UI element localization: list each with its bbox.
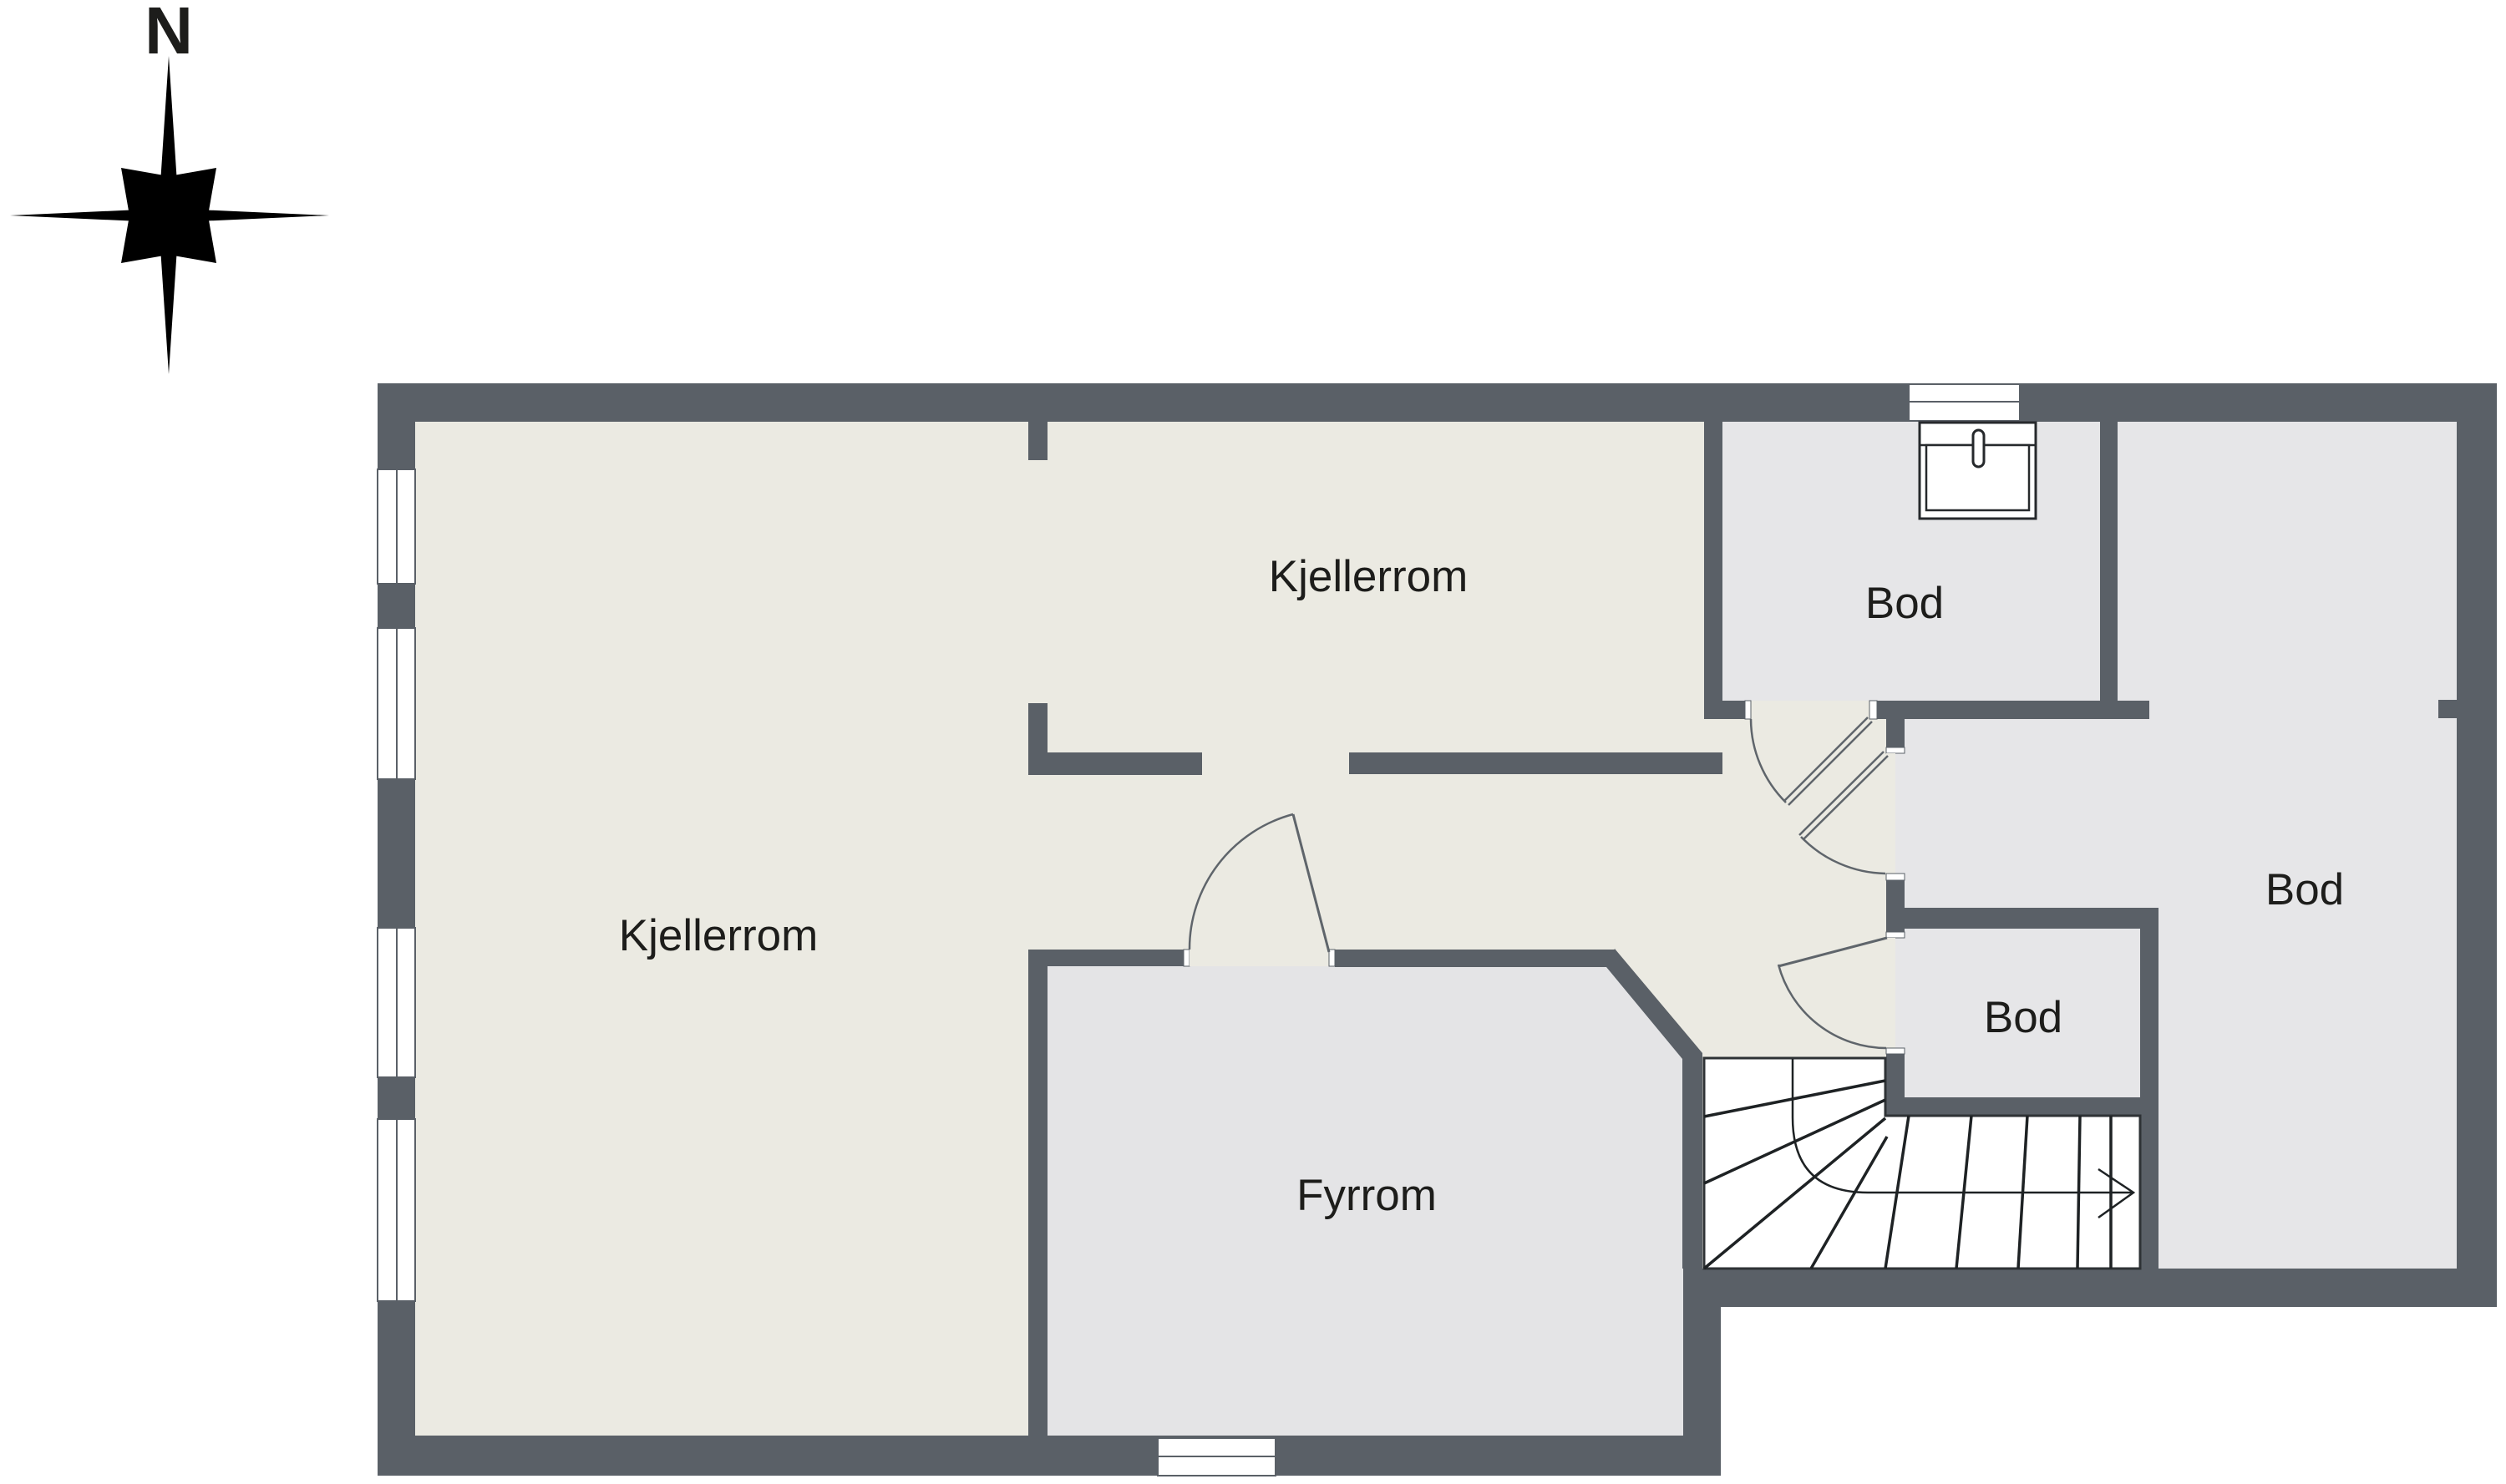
svg-text:Bod: Bod [2265,865,2344,914]
svg-text:Bod: Bod [1984,993,2062,1042]
svg-text:Kjellerrom: Kjellerrom [1269,552,1469,601]
svg-text:N: N [145,0,193,68]
svg-text:Kjellerrom: Kjellerrom [619,911,819,960]
svg-text:Bod: Bod [1865,579,1944,628]
svg-text:Fyrrom: Fyrrom [1296,1171,1437,1220]
